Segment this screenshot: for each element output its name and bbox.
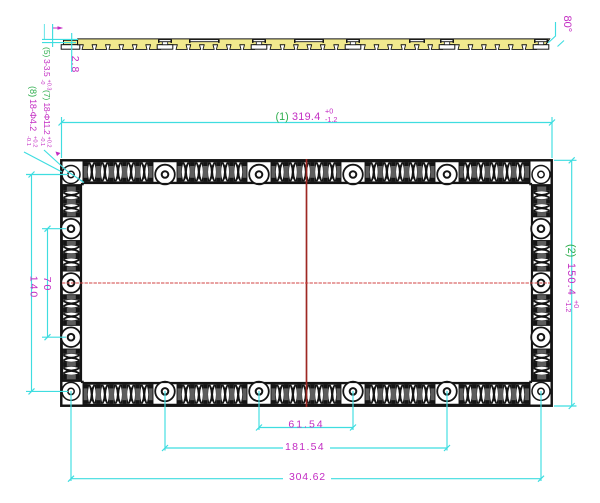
- svg-text:80°: 80°: [561, 16, 573, 33]
- svg-text:(1): (1): [276, 111, 289, 123]
- svg-text:181.54: 181.54: [285, 441, 325, 453]
- svg-text:304.62: 304.62: [289, 471, 326, 483]
- svg-text:+0.3: +0.3: [45, 80, 51, 91]
- svg-text:319.4: 319.4: [292, 111, 321, 123]
- svg-text:(7): (7): [42, 90, 52, 101]
- svg-text:(5): (5): [42, 47, 52, 58]
- svg-text:+0.2: +0.2: [45, 137, 51, 148]
- svg-text:18-Φ4.2: 18-Φ4.2: [28, 99, 38, 131]
- svg-text:2.8: 2.8: [69, 56, 81, 74]
- svg-text:-1.2: -1.2: [564, 300, 573, 312]
- svg-text:-0.1: -0.1: [39, 137, 45, 147]
- svg-text:150.4: 150.4: [565, 263, 577, 296]
- svg-text:61.54: 61.54: [288, 418, 324, 430]
- svg-text:18-Φ11.2: 18-Φ11.2: [42, 103, 52, 135]
- svg-text:3-3.5: 3-3.5: [42, 59, 52, 77]
- svg-text:+0.2: +0.2: [31, 136, 37, 147]
- svg-text:140: 140: [27, 276, 39, 300]
- svg-text:(2): (2): [565, 244, 577, 257]
- svg-text:-1.2: -1.2: [325, 115, 337, 124]
- svg-text:70: 70: [41, 277, 53, 293]
- svg-text:-0: -0: [39, 80, 45, 85]
- svg-text:-0.1: -0.1: [25, 136, 31, 146]
- svg-text:(8): (8): [28, 86, 38, 97]
